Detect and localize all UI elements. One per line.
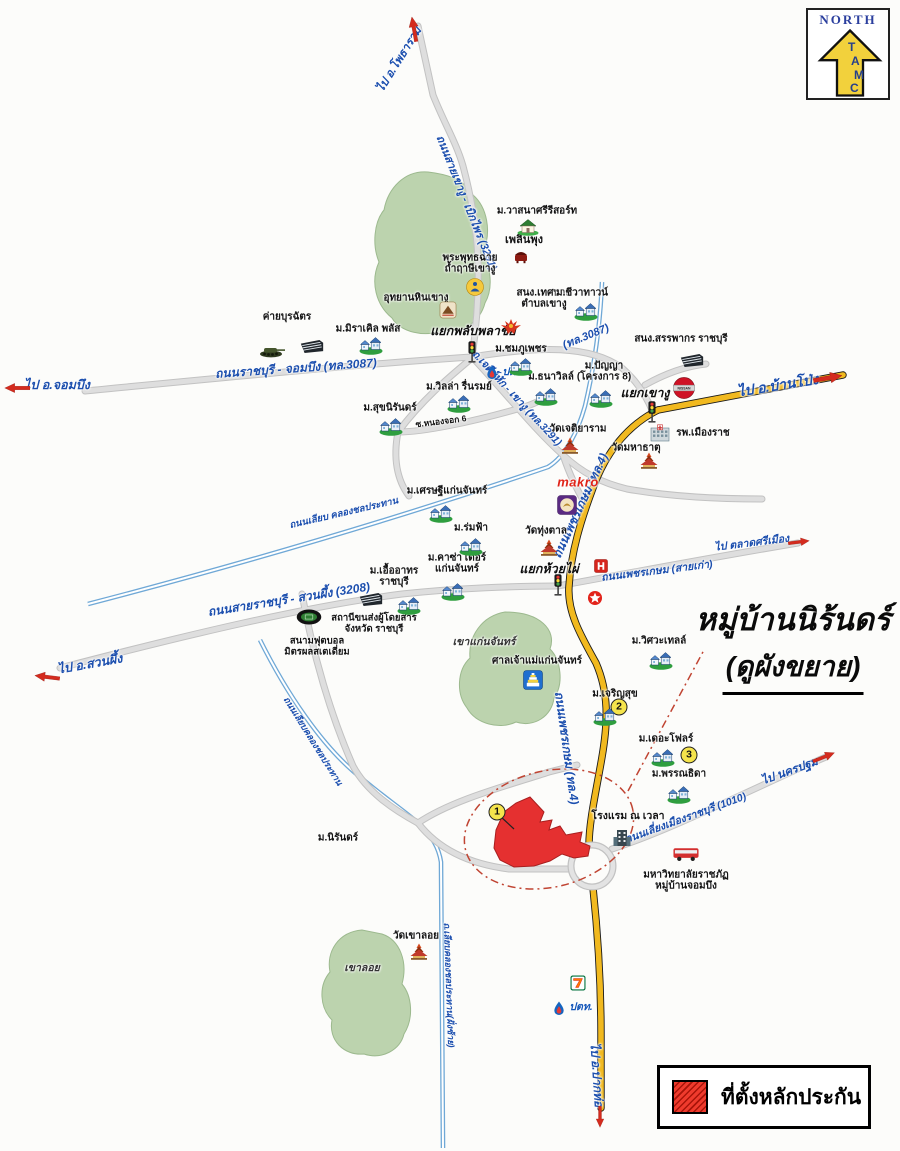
place-phra-phuttha-chai: พระพุทธฉายถ้ำฤาษีเขางู <box>443 253 498 276</box>
place-bus-terminal: สถานีขนส่งผู้โดยสารจังหวัด ราชบุรี <box>331 613 416 634</box>
place-casa-kaen-chan: ม.คาซ่า เดอร์แก่นจันทร์ <box>428 553 486 576</box>
place-wasana-resort: ม.วาสนาศรีรีสอร์ท <box>497 205 577 216</box>
house-icon-wasana <box>517 218 539 236</box>
honda-logo-icon <box>594 559 608 573</box>
place-suk-niran: ม.สุขนิรันดร์ <box>363 402 416 413</box>
bus-icon-university <box>673 846 700 862</box>
canal-label-2: ถนนเลียบคลองชลประทาน <box>281 695 344 788</box>
hotel-icon <box>612 829 632 847</box>
village-icon-miracle-plus <box>359 335 383 355</box>
compass-north-badge: NORTH T A M C <box>806 8 890 100</box>
village-icon-the-flor <box>651 747 675 767</box>
temple-icon-mahathat <box>637 452 661 470</box>
collateral-swatch-icon <box>672 1080 708 1114</box>
temple-icon-thung-tan <box>537 539 561 557</box>
place-san-chao-mae: ศาลเจ้าแม่แก่นจันทร์ <box>492 655 582 666</box>
shrine-icon <box>523 670 543 690</box>
arrow-icon-pak-tho <box>596 1106 605 1128</box>
village-icon-casa <box>441 581 465 601</box>
makro-logo-icon <box>557 495 577 515</box>
dir-pak-tho: ไป อ.ปากท่อ <box>587 1042 605 1107</box>
dir-nakhon-pathom: ไป นครปฐม <box>760 756 820 788</box>
traffic-light-icon-plubplachai <box>467 341 478 363</box>
nissan-logo-icon <box>673 377 696 400</box>
arrow-icon-chom-bueng <box>4 383 30 393</box>
traffic-light-icon-huai-phai <box>553 574 564 596</box>
seven-eleven-icon <box>571 976 586 991</box>
village-icon-panya <box>589 388 613 408</box>
place-thanawill: ม.ธนาวิลล์ <box>528 371 574 382</box>
dir-ban-pong: ไป อ.บ้านโป่ง <box>736 372 819 400</box>
place-wat-chetiyaram: วัดเจติยาราม <box>550 423 607 434</box>
village-icon-witsawa <box>649 650 673 670</box>
traffic-light-icon-khao-ngu <box>647 401 658 423</box>
place-mitr-phol-stadium: สนามฟุตบอลมิตรผลสเตเดี่ยม <box>284 636 349 657</box>
building-icon-burachat <box>299 338 325 354</box>
hospital-icon <box>650 424 670 442</box>
stadium-icon <box>296 609 323 626</box>
village-icon-thanawill <box>534 386 558 406</box>
place-na-vela-hotel: โรงแรม ณ เวลา <box>591 811 664 823</box>
badge-1: 1 <box>489 804 506 821</box>
junction-huai-phai: แยกห้วยไผ่ <box>519 562 578 576</box>
ptt-icon-south <box>553 1001 566 1016</box>
road-label-phet-old: ถนนเพชรเกษม (สายเก่า) <box>601 559 714 584</box>
tamc-letter-t: T <box>848 40 855 54</box>
tamc-letter-a: A <box>851 54 860 68</box>
collateral-location-map: NISSAN <box>0 0 900 1151</box>
poi-overlay: ถนนราชบุรี - จอมบึง (ทล.3087)(ทล.3087)ถน… <box>0 0 900 1151</box>
village-icon-phan-thida <box>667 784 691 804</box>
building-icon-sanphakon <box>679 352 705 368</box>
collateral-callout: หมู่บ้านนิร้นดร์ (ดูผังขยาย) <box>696 594 891 695</box>
dir-suan-phueng: ไป อ.สวนผึ้ง <box>57 651 124 676</box>
place-rom-fa: ม.ร่มฟ้า <box>454 522 488 533</box>
place-miracle-plus: ม.มิราเคิล พลัส <box>336 323 401 334</box>
village-icon-suk-niran <box>379 416 403 436</box>
legend: ที่ตั้งหลักประกัน <box>657 1065 871 1129</box>
tamc-letter-m: M <box>854 68 864 82</box>
garuda-icon <box>500 318 522 336</box>
temple-icon-khao-loi <box>407 943 431 961</box>
place-niran: ม.นิรันดร์ <box>318 832 358 843</box>
mountain-park-icon <box>440 302 457 319</box>
canal-label-1: ถนนเลียบ คลองชลประทาน <box>289 496 400 531</box>
place-soi-nong-chok: ซ.หนองจอก 6 <box>415 414 467 430</box>
road-label-3291: ถนนสายเขางู - เบิกไพร (3291) <box>433 134 499 273</box>
collateral-callout-subtitle: (ดูผังขยาย) <box>723 645 864 695</box>
village-icon-villa-ruenrom <box>447 393 471 413</box>
place-sanphakon: สนง.สรรพากร ราชบุรี <box>634 333 727 344</box>
place-villa-ruenrom: ม.วิลล่า รื่นรมย์ <box>426 381 492 392</box>
temple-icon-chetiyaram <box>558 437 582 455</box>
place-wat-khao-loi: วัดเขาลอย <box>393 930 439 941</box>
place-chomphu-phet: ม.ชมภูเพชร <box>495 343 547 354</box>
place-ratchaphat: มหาวิทยาลัยราชภัฏหมู่บ้านจอมบึง <box>643 870 729 893</box>
village-icon-chomphu-phet <box>509 356 533 376</box>
place-witsawa-thel: ม.วิศวะเทลล์ <box>632 635 687 646</box>
arrow-icon-nakhon-pathom <box>811 748 837 766</box>
place-phan-thida: ม.พรรณธิดา <box>652 768 706 779</box>
place-chiwa-town: ม.ชีวาทาวน์ <box>556 287 608 298</box>
village-icon-uea-athon <box>397 595 421 615</box>
tamc-letter-c: C <box>850 81 859 95</box>
village-icon-setthi <box>429 503 453 523</box>
area-khao-kaen-chan: เขาแก่นจันทร์ <box>453 637 516 649</box>
legend-label: ที่ตั้งหลักประกัน <box>721 1081 861 1114</box>
brand-makro: makro <box>557 476 599 491</box>
collateral-callout-title: หมู่บ้านนิร้นดร์ <box>696 594 891 644</box>
place-khai-burachat: ค่ายบุรฉัตร <box>263 311 312 322</box>
ptt-icon-north <box>486 365 499 380</box>
tank-icon <box>258 343 286 358</box>
place-the-flor: ม.เดอะโฟลร์ <box>639 733 694 744</box>
badge-3: 3 <box>681 747 698 764</box>
place-panya: ม.ปัญญา(โครงการ 8) <box>577 361 631 384</box>
place-setthi-kaen-chan: ม.เศรษฐีแก่นจันทร์ <box>407 485 488 496</box>
village-icon-charoen-suk <box>593 706 617 726</box>
brand-ptt-south: ปตท. <box>569 1002 592 1014</box>
road-label-3087-2: (ทล.3087) <box>561 322 611 352</box>
village-icon-rom-fa <box>459 536 483 556</box>
buddha-icon <box>466 278 484 296</box>
place-mueang-rat-hospital: รพ.เมืองราช <box>676 427 729 438</box>
area-khao-loi: เขาลอย <box>344 963 380 975</box>
road-label-3087: ถนนราชบุรี - จอมบึง (ทล.3087) <box>215 357 378 382</box>
building-icon-bus-terminal <box>358 591 384 607</box>
road-label-phet4-south: ถนนเพชรเกษม (ทล.4) <box>551 691 580 806</box>
place-wat-thung-tan: วัดทุ่งตาล <box>525 525 567 536</box>
place-charoen-suk: ม.เจริญสุข <box>592 688 637 699</box>
canal-label-3: ถ.เลียบคลองชลประทาน(ฝั่งซ้าย) <box>442 922 457 1047</box>
junction-khao-ngu: แยกเขางู <box>621 386 670 400</box>
village-icon-chiwa-town <box>574 301 598 321</box>
arrow-icon-suan-phueng <box>33 670 60 683</box>
dir-srimuang-market: ไป ตลาดศรีเมือง <box>714 534 790 555</box>
caltex-logo-icon <box>588 591 603 606</box>
place-uea-athon: ม.เอื้ออาทรราชบุรี <box>370 566 418 589</box>
arrow-icon-srimuang <box>788 536 811 548</box>
dir-chom-bueng: ไป อ.จอมบึง <box>24 378 90 392</box>
restaurant-icon-ploen-phung <box>514 250 528 264</box>
